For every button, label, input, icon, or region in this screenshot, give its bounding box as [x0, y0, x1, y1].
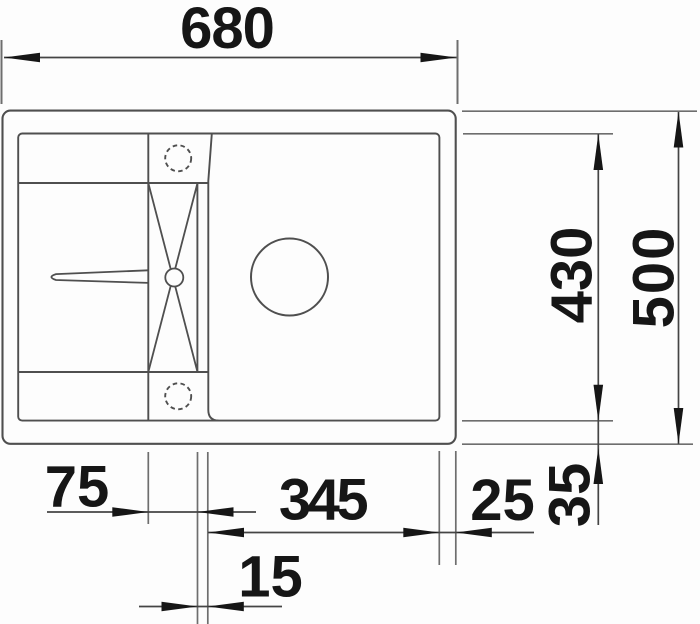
- svg-text:680: 680: [180, 0, 274, 61]
- svg-text:35: 35: [538, 463, 603, 528]
- svg-text:75: 75: [45, 455, 110, 520]
- svg-text:15: 15: [238, 545, 303, 610]
- svg-text:430: 430: [540, 227, 605, 324]
- svg-text:500: 500: [622, 226, 687, 329]
- svg-text:345: 345: [279, 468, 368, 533]
- svg-text:25: 25: [470, 468, 535, 533]
